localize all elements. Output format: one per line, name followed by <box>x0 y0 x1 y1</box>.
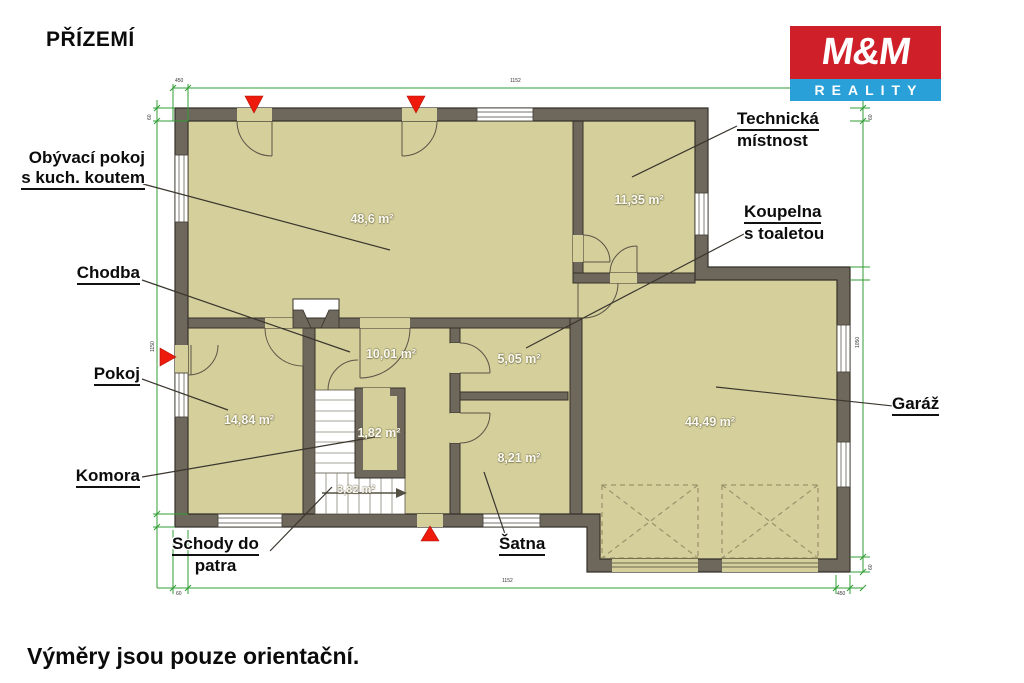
logo-mm: M&M <box>790 26 941 79</box>
label-tech-room: Technická místnost <box>737 109 819 151</box>
label-living-room: Obývací pokoj s kuch. koutem <box>15 148 145 190</box>
label-room: Pokoj <box>40 364 140 386</box>
logo-reality: REALITY <box>790 79 941 101</box>
dim-bottom-small: 60 <box>176 591 182 597</box>
dim-left-small: 60 <box>147 114 153 120</box>
footer-disclaimer: Výměry jsou pouze orientační. <box>27 643 359 670</box>
mm-reality-logo: M&M REALITY <box>790 26 941 101</box>
dim-bottom-main: 1152 <box>502 578 513 584</box>
dim-top-small: 450 <box>175 78 183 84</box>
dim-right-small: 60 <box>868 114 874 120</box>
area-bathroom: 5,05 m² <box>497 352 540 366</box>
dim-top-main: 1152 <box>510 78 521 84</box>
area-stairs: 3,82 m² <box>337 484 375 496</box>
area-hallway: 10,01 m² <box>366 347 416 361</box>
entrance-arrow-icon <box>421 526 439 541</box>
label-bathroom: Koupelna s toaletou <box>744 202 824 244</box>
dim-right-main: 1050 <box>855 337 861 348</box>
area-closet: 8,21 m² <box>497 451 540 465</box>
label-hallway: Chodba <box>40 263 140 285</box>
label-pantry: Komora <box>40 466 140 488</box>
label-closet: Šatna <box>499 534 545 556</box>
page-title: PŘÍZEMÍ <box>46 28 135 52</box>
dim-right-bottom: 60 <box>868 564 874 570</box>
floorplan-page: PŘÍZEMÍ M&M REALITY Obývací pokoj s kuch… <box>0 0 1024 683</box>
area-living-room: 48,6 m² <box>350 212 393 226</box>
dim-bottom-right: 450 <box>837 591 845 597</box>
area-room: 14,84 m² <box>224 413 274 427</box>
area-garage: 44,49 m² <box>685 415 735 429</box>
entrance-arrow-icon <box>160 348 176 366</box>
floor-area <box>188 121 837 559</box>
label-stairs: Schody do patra <box>158 534 273 576</box>
area-tech-room: 11,35 m² <box>614 193 663 207</box>
dim-left-main: 1150 <box>150 341 156 352</box>
area-pantry: 1,82 m² <box>357 426 400 440</box>
label-garage: Garáž <box>892 394 939 416</box>
